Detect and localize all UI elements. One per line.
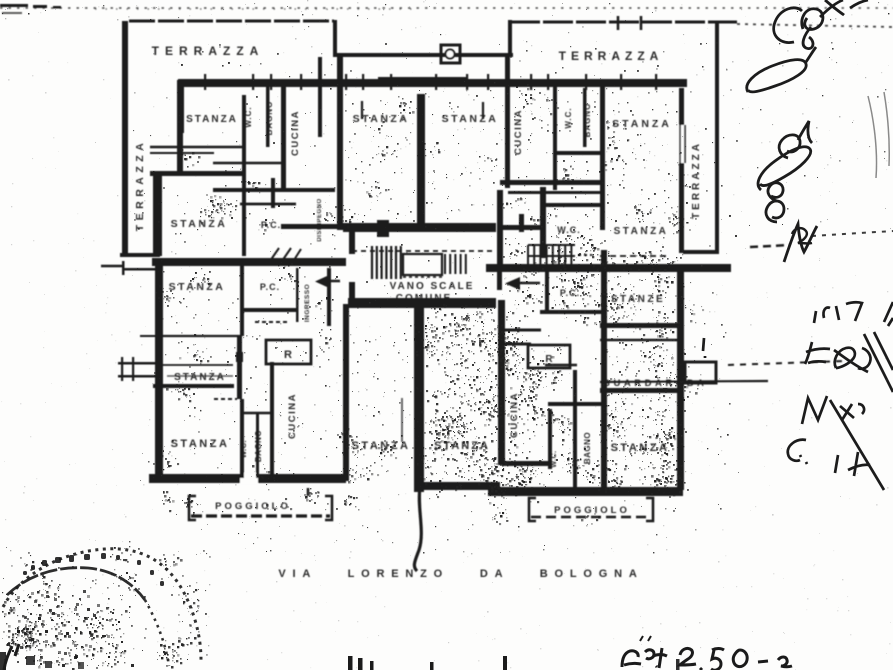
svg-text:STANZA: STANZA	[611, 442, 670, 454]
svg-text:INGRESSO: INGRESSO	[304, 284, 311, 322]
svg-text:W.C.: W.C.	[239, 440, 248, 458]
svg-text:BAGNO: BAGNO	[265, 101, 274, 136]
svg-text:STANZA: STANZA	[171, 218, 228, 230]
svg-text:TERRAZZA: TERRAZZA	[134, 139, 146, 232]
svg-text:P.C.: P.C.	[261, 220, 281, 230]
svg-text:W.C.: W.C.	[564, 107, 573, 128]
svg-text:DISIMPEGNO: DISIMPEGNO	[317, 198, 323, 241]
svg-text:VANO SCALE: VANO SCALE	[390, 281, 475, 292]
svg-text:CUCINA: CUCINA	[290, 110, 301, 156]
svg-text:TERRAZZA: TERRAZZA	[152, 44, 265, 58]
svg-text:STANZA: STANZA	[186, 114, 238, 125]
svg-text:TERRAZZA: TERRAZZA	[559, 49, 664, 63]
svg-text:STANZA: STANZA	[442, 113, 499, 125]
svg-text:W.C.: W.C.	[244, 106, 253, 127]
svg-text:STANZA: STANZA	[171, 438, 230, 450]
svg-text:TERRAZZA: TERRAZZA	[691, 141, 702, 219]
svg-text:BAGNO: BAGNO	[583, 103, 592, 138]
svg-text:POGGIOLO: POGGIOLO	[215, 501, 291, 512]
svg-text:W.C.: W.C.	[557, 225, 581, 235]
svg-text:STANZA: STANZA	[169, 281, 226, 293]
svg-text:P.C.: P.C.	[260, 282, 280, 292]
svg-text:POGGIOLO: POGGIOLO	[554, 505, 630, 516]
svg-text:STANZA: STANZA	[614, 226, 669, 237]
svg-text:R: R	[284, 349, 292, 361]
svg-text:STANZA: STANZA	[174, 372, 226, 383]
svg-text:COMUNE: COMUNE	[396, 293, 452, 304]
svg-text:CUCINA: CUCINA	[513, 109, 524, 155]
svg-text:CUCINA: CUCINA	[509, 392, 520, 438]
svg-text:VIA LORENZO DA BOLOGNA: VIA LORENZO DA BOLOGNA	[278, 568, 643, 580]
